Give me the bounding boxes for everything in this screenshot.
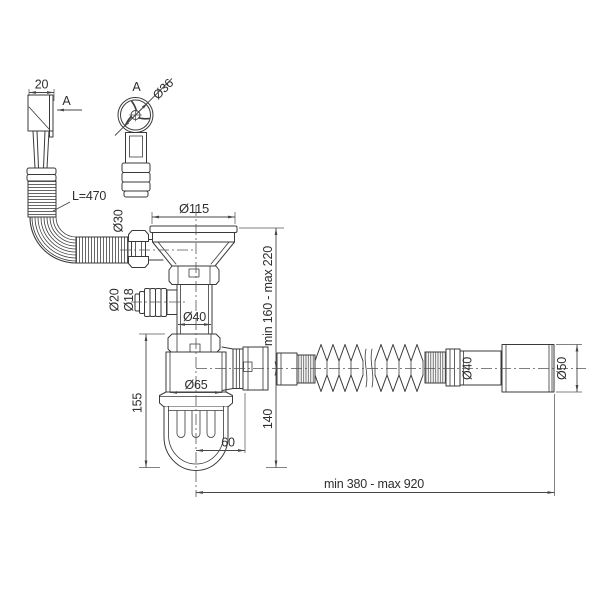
hose-end-fitting-left [277,353,315,385]
dim-label-outlet-offset: 60 [221,436,235,450]
siphon-drawing: 20 A A Ø36 L=470 Ø30 Ø115 Ø20 Ø18 Ø40 mi… [0,0,600,600]
dim-label-inlet-outer: Ø20 [108,288,122,311]
bottle-trap [160,334,269,471]
overflow-hose-vertical [28,181,56,217]
section-arrow-label: A [62,94,71,108]
dim-label-inlet-inner: Ø18 [122,288,136,311]
detail-a-view [118,98,153,198]
dim-label-inlet-height: min 160 - max 220 [261,246,275,346]
overflow-cap-body [122,133,150,198]
section-arrow-a: A [57,94,82,110]
funnel-nut [169,266,219,285]
dim-label-outlet-hose-diameter: Ø40 [461,357,475,380]
overflow-rings [27,168,56,181]
dim-label-outlet-drop: 140 [261,409,275,430]
overflow-nut [129,231,149,268]
overflow-neck [33,131,49,168]
detail-title-label: A [132,80,141,94]
dim-label-overflow-nut-diameter: Ø30 [112,209,126,232]
trap-top-nut [168,334,220,352]
dim-label-overall-length: min 380 - max 920 [324,477,424,491]
dim-label-cap-diameter: Ø36 [150,76,176,102]
appliance-inlet [135,289,177,317]
hose-corrugations [315,345,423,392]
dim-label-trap-cup: Ø65 [184,378,207,392]
dim-label-overflow-width: 20 [35,78,49,92]
dim-strainer-flange-diameter: Ø115 [152,201,235,224]
funnel-cone [153,242,235,266]
overflow-hose-bend [30,217,76,263]
strainer-flange [150,226,237,233]
dim-label-outlet-end: Ø50 [555,357,569,380]
dim-label-trap-height: 155 [131,393,145,414]
technical-drawing-canvas: 20 A A Ø36 L=470 Ø30 Ø115 Ø20 Ø18 Ø40 mi… [0,0,600,600]
dim-label-hose-length: L=470 [72,189,106,203]
dim-overflow-hose-length: L=470 [53,189,106,211]
dim-label-flange-diameter: Ø115 [179,201,209,216]
hose-break-symbol [365,349,373,387]
dim-overall-length-range: min 380 - max 920 [196,394,555,496]
dim-label-body-pipe: Ø40 [183,310,206,324]
